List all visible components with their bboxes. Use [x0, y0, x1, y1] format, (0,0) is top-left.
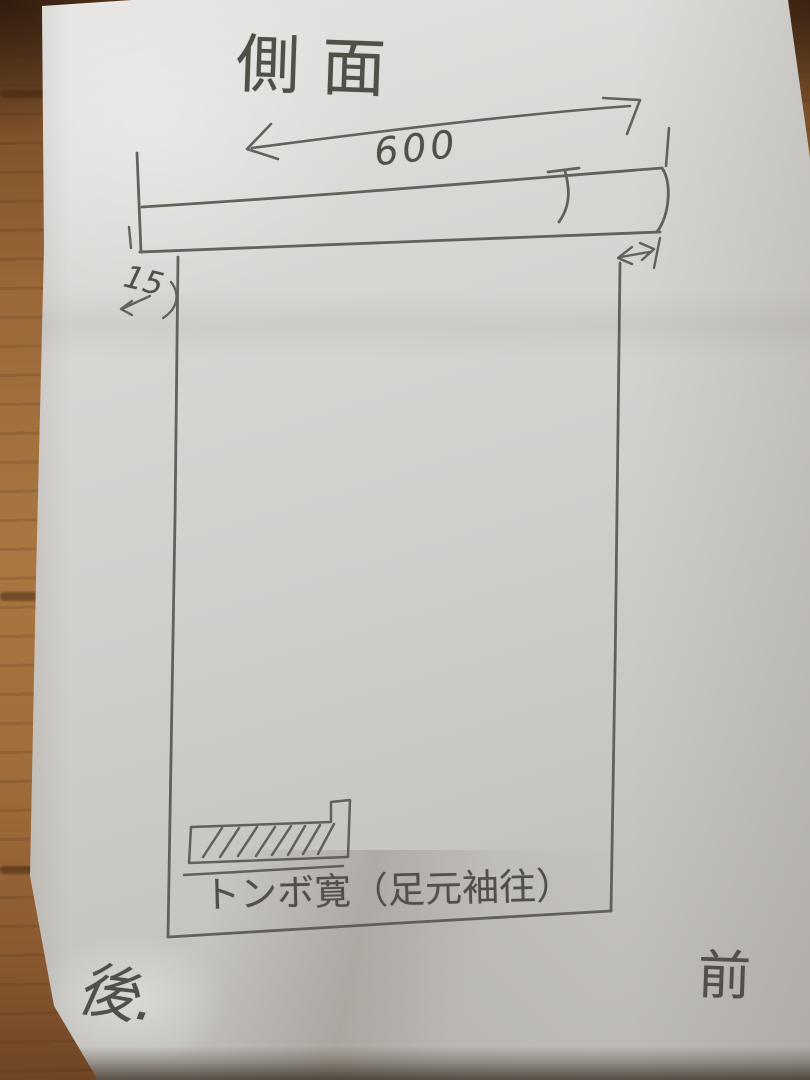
- wood-grain-streak: [0, 866, 34, 874]
- paper-sheet: 側面 600 15 トンボ寛（足元袖往） 後. 前: [0, 0, 810, 1080]
- hatch-note-label: トンボ寛（足元袖往）: [202, 855, 573, 919]
- front-label: 前: [697, 933, 753, 1011]
- page-title: 側面: [234, 13, 409, 111]
- right-gap-arrow-icon: [618, 238, 660, 268]
- diagonal-hatching-icon: [203, 824, 334, 857]
- dimension-600-label: 600: [372, 122, 461, 175]
- rear-label: 後.: [71, 940, 164, 1039]
